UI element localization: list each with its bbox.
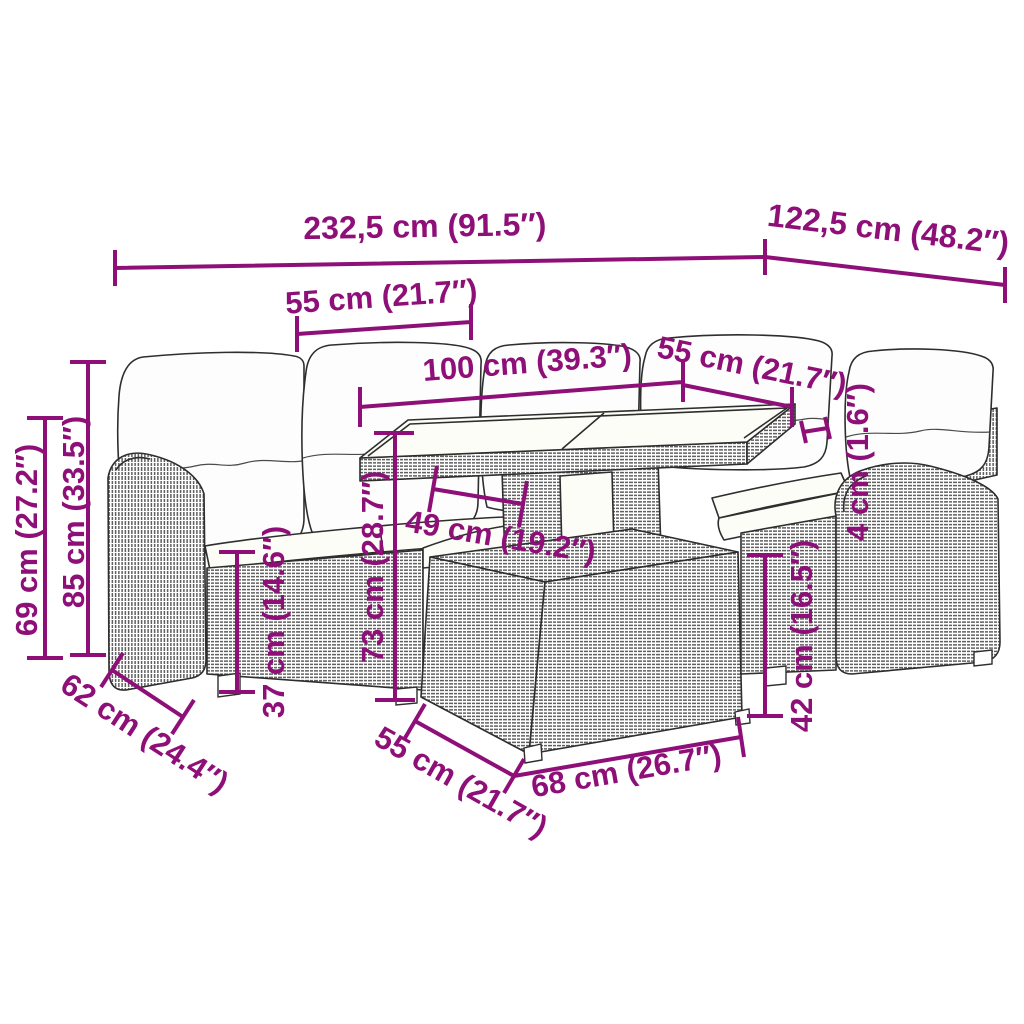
left-seat-width-label: 55 cm (21.7″) bbox=[284, 272, 478, 320]
sofa-leg bbox=[974, 650, 992, 666]
sofa-leg bbox=[766, 666, 786, 686]
armrest-height-label: 69 cm (27.2″) bbox=[9, 444, 44, 636]
left-seat-height-label: 37 cm (14.6″) bbox=[256, 526, 291, 718]
dining-table bbox=[360, 404, 795, 763]
product-dimension-diagram: 232,5 cm (91.5″) 122,5 cm (48.2″) 55 cm … bbox=[0, 0, 1024, 1024]
overall-depth-label: 122,5 cm (48.2″) bbox=[766, 197, 1012, 262]
diagram-canvas: 232,5 cm (91.5″) 122,5 cm (48.2″) 55 cm … bbox=[0, 0, 1024, 1024]
sofa-leg bbox=[396, 687, 417, 705]
dimension-armrest-height: 69 cm (27.2″) bbox=[9, 418, 63, 658]
dimension-glass-thickness: 4 cm (1.6″) bbox=[840, 383, 875, 541]
backrest-height-label: 85 cm (33.5″) bbox=[56, 416, 91, 608]
table-base-front bbox=[529, 552, 742, 754]
table-leg bbox=[524, 744, 542, 763]
right-seat-height-label: 42 cm (16.5″) bbox=[784, 540, 819, 732]
overall-width-label: 232,5 cm (91.5″) bbox=[303, 206, 547, 246]
table-base-left bbox=[421, 557, 545, 754]
dimension-overall-depth: 122,5 cm (48.2″) bbox=[765, 197, 1011, 303]
table-height-label: 73 cm (28.7″) bbox=[355, 471, 390, 663]
dimension-backrest-height: 85 cm (33.5″) bbox=[56, 362, 106, 655]
dimension-left-seat-width: 55 cm (21.7″) bbox=[284, 272, 478, 352]
left-base-box bbox=[207, 550, 423, 690]
glass-thickness-label: 4 cm (1.6″) bbox=[840, 383, 875, 541]
